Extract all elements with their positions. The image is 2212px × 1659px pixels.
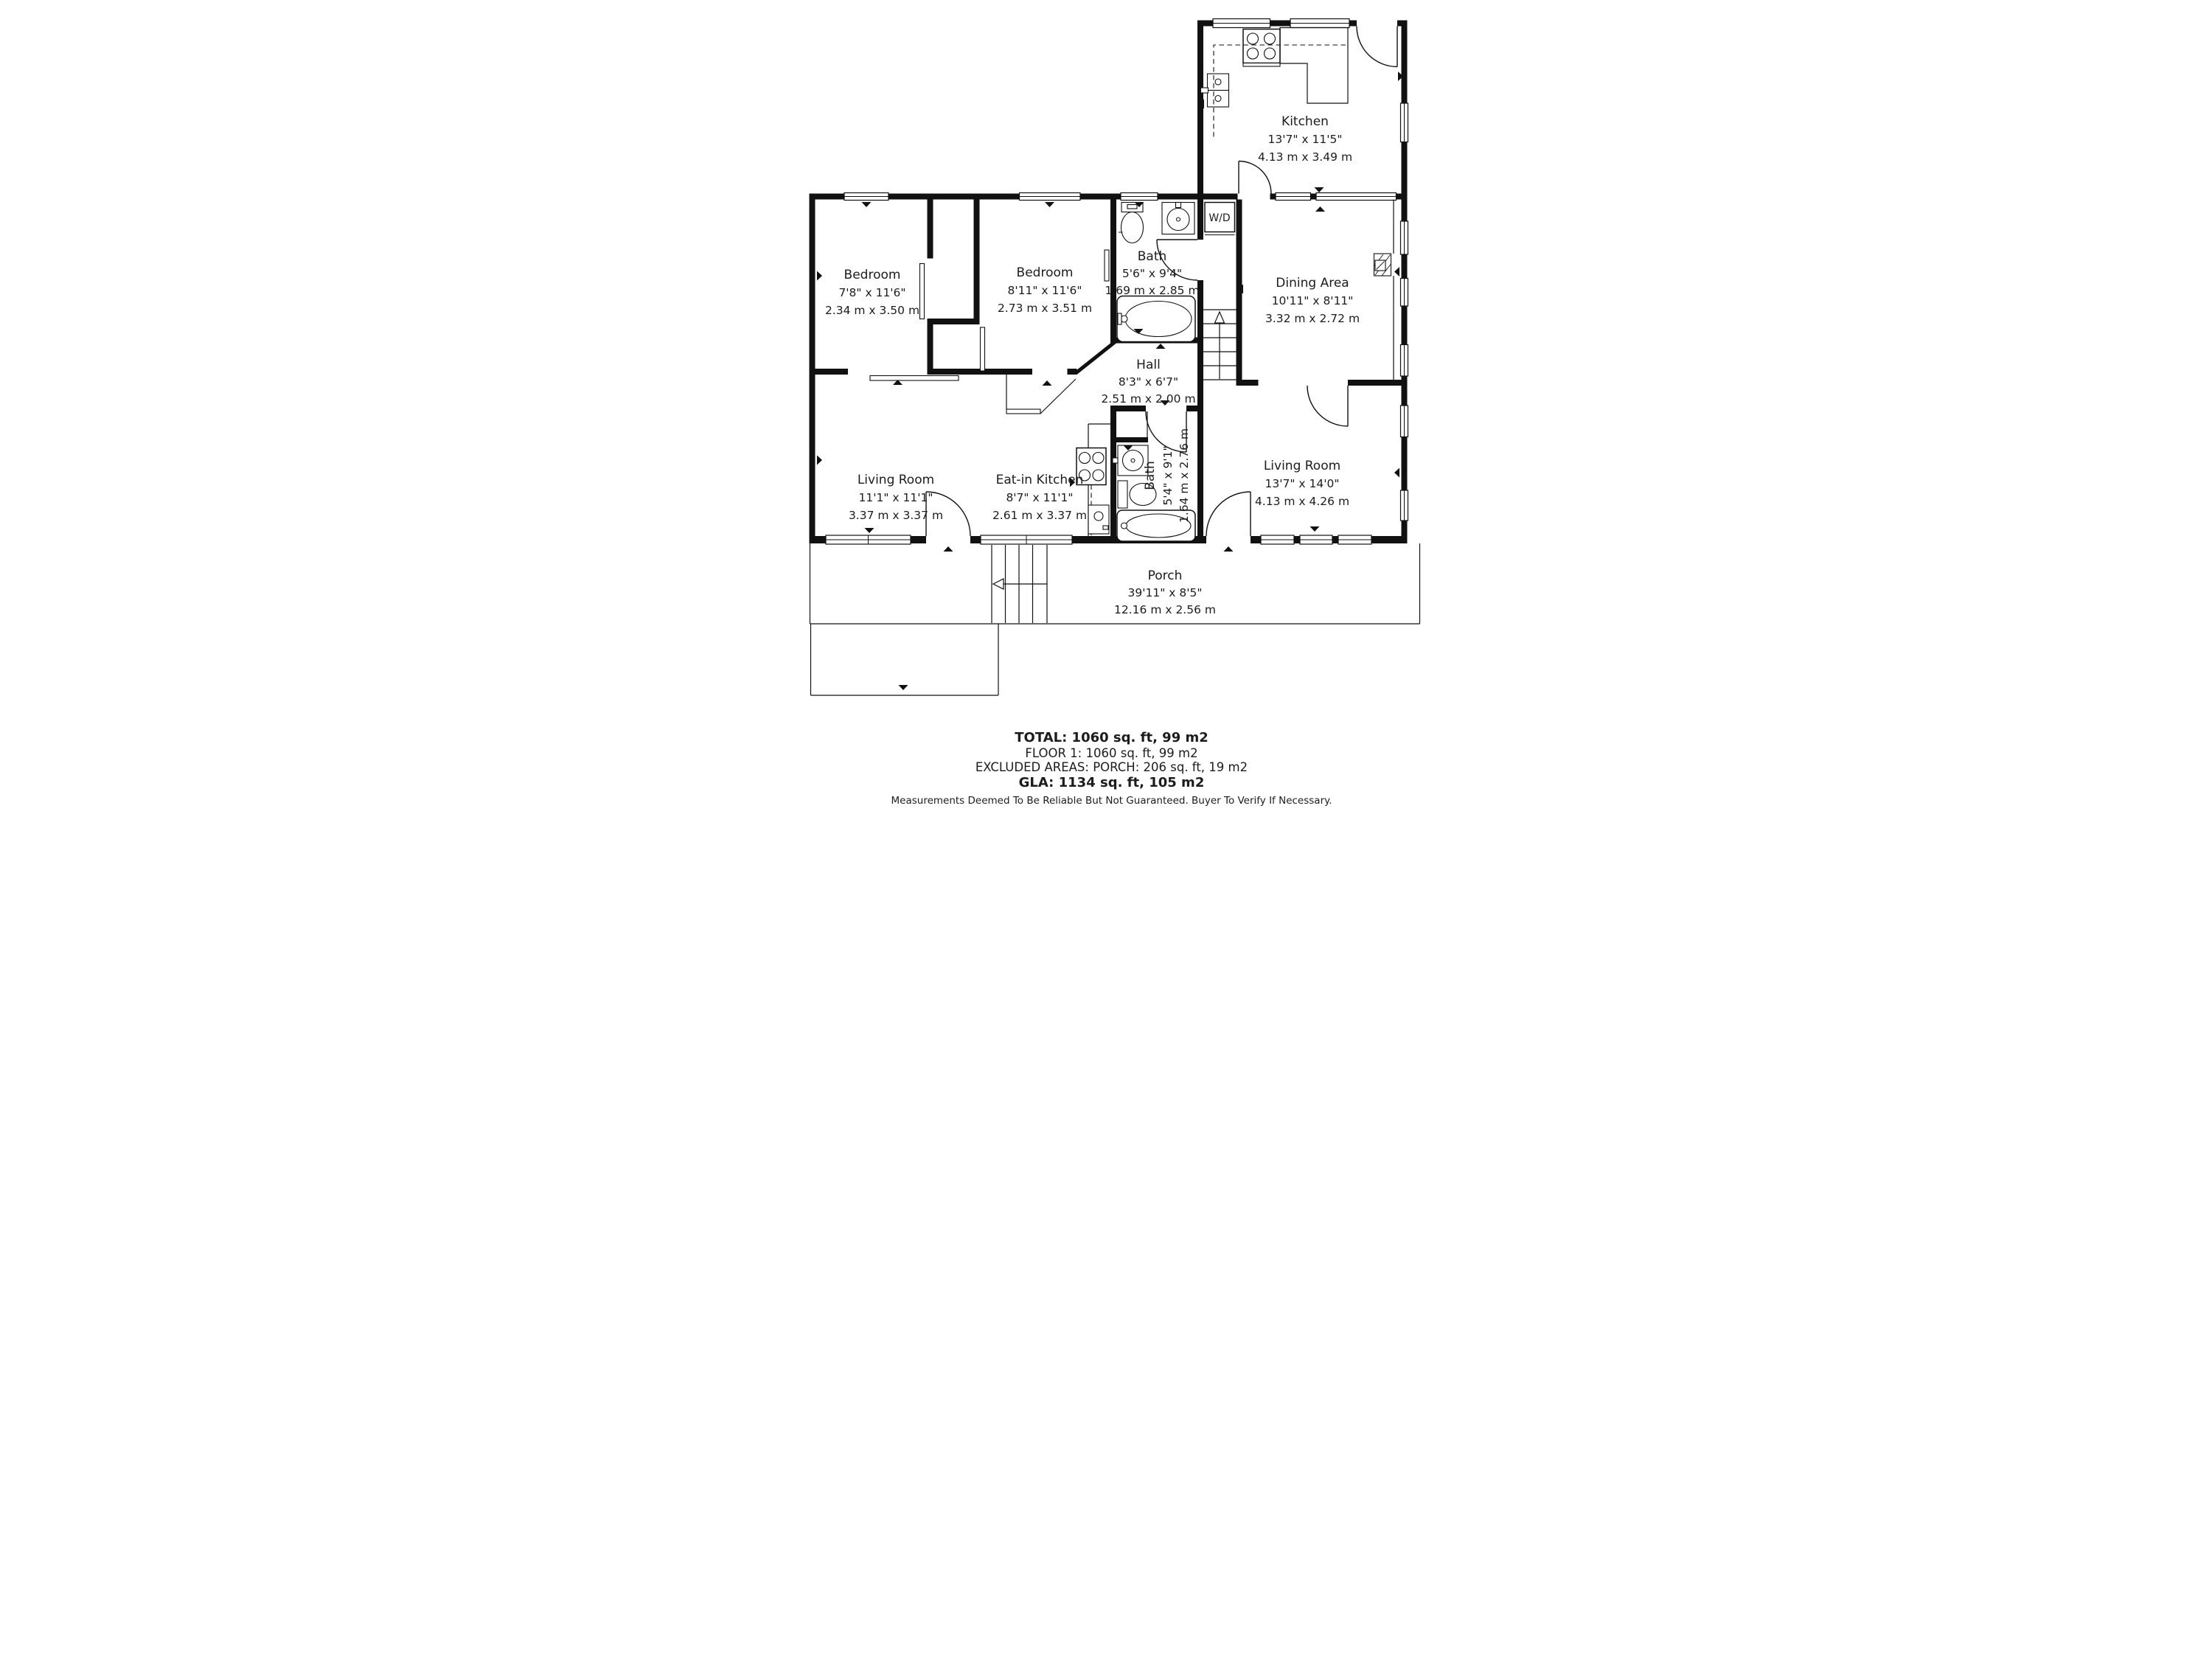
window bbox=[844, 193, 888, 201]
stove-icon bbox=[1243, 29, 1280, 67]
room-name: Bedroom bbox=[1017, 265, 1074, 280]
room-label-bedroom2: Bedroom 8'11" x 11'6" 2.73 m x 3.51 m bbox=[998, 265, 1092, 315]
room-name: Eat-in Kitchen bbox=[996, 473, 1084, 487]
room-label-living1: Living Room 11'1" x 11'1" 3.37 m x 3.37 … bbox=[849, 473, 943, 522]
deck-outline bbox=[811, 624, 999, 695]
bedroom-sliding-door bbox=[870, 376, 959, 381]
room-label-porch: Porch 39'11" x 8'5" 12.16 m x 2.56 m bbox=[1114, 568, 1216, 616]
washer-dryer: W/D bbox=[1205, 203, 1235, 235]
window bbox=[1401, 345, 1408, 377]
washer-dryer-label: W/D bbox=[1208, 212, 1230, 224]
room-name: Living Room bbox=[1264, 459, 1340, 473]
closet-slider bbox=[920, 264, 925, 319]
room-label-bath1: Bath 5'6" x 9'4" 1.69 m x 2.85 m bbox=[1105, 249, 1199, 297]
room-name: Kitchen bbox=[1281, 114, 1329, 129]
closet-under-stairs bbox=[1006, 375, 1076, 414]
room-metric: 3.37 m x 3.37 m bbox=[849, 509, 943, 522]
direction-marker-icon bbox=[899, 685, 908, 690]
direction-marker-icon bbox=[1045, 202, 1054, 207]
bathtub-icon bbox=[1117, 296, 1195, 342]
room-imperial: 5'6" x 9'4" bbox=[1122, 267, 1182, 280]
room-imperial: 39'11" x 8'5" bbox=[1128, 586, 1203, 599]
closet-slider bbox=[981, 327, 985, 371]
door-kitchen-entry bbox=[1357, 27, 1397, 67]
bath-sink-icon bbox=[1162, 203, 1194, 234]
direction-marker-icon bbox=[944, 546, 953, 552]
room-imperial: 13'7" x 14'0" bbox=[1265, 477, 1340, 490]
window bbox=[1213, 19, 1270, 28]
room-imperial: 5'4" x 9'1" bbox=[1161, 445, 1175, 505]
stairs-up-arrow-icon bbox=[1215, 312, 1225, 323]
room-imperial: 8'7" x 11'1" bbox=[1006, 491, 1073, 504]
direction-marker-icon bbox=[862, 202, 872, 207]
room-name: Bath bbox=[1138, 249, 1167, 264]
kitchen-counter bbox=[1280, 28, 1348, 104]
summary-disclaimer: Measurements Deemed To Be Reliable But N… bbox=[891, 795, 1332, 807]
direction-marker-icon bbox=[1394, 267, 1399, 276]
room-label-dining: Dining Area 10'11" x 8'11" 3.32 m x 2.72… bbox=[1265, 276, 1360, 325]
pass-through-window bbox=[1316, 193, 1397, 201]
direction-marker-icon bbox=[1156, 344, 1166, 349]
room-label-bath2: Bath 5'4" x 9'1" 1.64 m x 2.76 m bbox=[1143, 428, 1191, 523]
direction-marker-icon bbox=[1310, 526, 1320, 532]
room-label-eat-in-kitchen: Eat-in Kitchen 8'7" x 11'1" 2.61 m x 3.3… bbox=[992, 473, 1087, 522]
room-metric: 2.51 m x 2.00 m bbox=[1101, 392, 1195, 406]
fireplace-icon bbox=[1374, 200, 1394, 380]
summary-floor1: FLOOR 1: 1060 sq. ft, 99 m2 bbox=[1025, 746, 1197, 760]
room-name: Living Room bbox=[858, 473, 934, 487]
door-dining-living bbox=[1307, 386, 1348, 426]
direction-marker-icon bbox=[865, 528, 874, 533]
window bbox=[1401, 103, 1408, 142]
direction-marker-icon bbox=[1043, 380, 1052, 386]
room-name: Bath bbox=[1143, 461, 1158, 490]
pass-through-window bbox=[1276, 193, 1311, 201]
direction-marker-icon bbox=[817, 456, 822, 465]
window bbox=[1290, 19, 1349, 28]
room-imperial: 13'7" x 11'5" bbox=[1268, 133, 1343, 146]
door-kitchen-hall bbox=[1239, 161, 1271, 194]
door-living2-porch bbox=[1206, 492, 1251, 536]
room-metric: 3.32 m x 2.72 m bbox=[1265, 312, 1360, 325]
window bbox=[826, 535, 911, 544]
room-metric: 2.61 m x 3.37 m bbox=[992, 509, 1087, 522]
room-metric: 1.69 m x 2.85 m bbox=[1105, 284, 1199, 297]
room-imperial: 8'3" x 6'7" bbox=[1119, 375, 1178, 389]
summary-total: TOTAL: 1060 sq. ft, 99 m2 bbox=[1015, 730, 1208, 745]
direction-marker-icon bbox=[1315, 206, 1325, 212]
window bbox=[1401, 490, 1408, 521]
window bbox=[1401, 279, 1408, 307]
window bbox=[1121, 193, 1158, 201]
floor-plan-page: W/D bbox=[553, 0, 1659, 829]
stairs-down-arrow-icon bbox=[993, 579, 1004, 589]
room-metric: 12.16 m x 2.56 m bbox=[1114, 603, 1216, 616]
window bbox=[981, 535, 1072, 544]
window bbox=[1401, 221, 1408, 254]
window bbox=[1300, 535, 1332, 544]
window bbox=[1261, 535, 1294, 544]
direction-marker-icon bbox=[1394, 468, 1399, 478]
window bbox=[1401, 406, 1408, 437]
summary-excluded: EXCLUDED AREAS: PORCH: 206 sq. ft, 19 m2 bbox=[975, 760, 1248, 774]
direction-marker-icon bbox=[1315, 187, 1324, 192]
room-imperial: 8'11" x 11'6" bbox=[1008, 284, 1082, 297]
room-label-kitchen: Kitchen 13'7" x 11'5" 4.13 m x 3.49 m bbox=[1258, 114, 1352, 164]
floor-plan-canvas: W/D bbox=[553, 0, 1659, 829]
room-imperial: 10'11" x 8'11" bbox=[1272, 294, 1354, 307]
direction-marker-icon bbox=[1224, 546, 1234, 552]
room-label-hall: Hall 8'3" x 6'7" 2.51 m x 2.00 m bbox=[1101, 358, 1195, 406]
room-name: Bedroom bbox=[844, 268, 901, 282]
toilet-icon bbox=[1121, 203, 1144, 243]
room-name: Dining Area bbox=[1276, 276, 1349, 291]
kitchen-sink-icon bbox=[1201, 74, 1229, 107]
bath-pocket-door bbox=[1105, 250, 1109, 281]
summary-gla: GLA: 1134 sq. ft, 105 m2 bbox=[1019, 775, 1205, 790]
room-metric: 4.13 m x 3.49 m bbox=[1258, 150, 1352, 164]
room-label-living2: Living Room 13'7" x 14'0" 4.13 m x 4.26 … bbox=[1255, 459, 1349, 508]
kitchen-sink-icon bbox=[1088, 505, 1109, 534]
room-name: Porch bbox=[1148, 568, 1183, 583]
porch-stairs bbox=[992, 545, 1047, 623]
window bbox=[1338, 535, 1371, 544]
room-label-bedroom1: Bedroom 7'8" x 11'6" 2.34 m x 3.50 m bbox=[825, 268, 919, 317]
window bbox=[1020, 193, 1081, 201]
room-imperial: 7'8" x 11'6" bbox=[838, 286, 905, 299]
room-metric: 1.64 m x 2.76 m bbox=[1178, 428, 1191, 523]
room-imperial: 11'1" x 11'1" bbox=[859, 491, 933, 504]
room-name: Hall bbox=[1136, 358, 1161, 372]
summary-block: TOTAL: 1060 sq. ft, 99 m2 FLOOR 1: 1060 … bbox=[891, 730, 1332, 807]
stairs-main bbox=[1203, 310, 1237, 380]
room-metric: 2.73 m x 3.51 m bbox=[998, 302, 1092, 315]
room-metric: 2.34 m x 3.50 m bbox=[825, 304, 919, 317]
direction-marker-icon bbox=[817, 271, 822, 281]
room-metric: 4.13 m x 4.26 m bbox=[1255, 495, 1349, 508]
